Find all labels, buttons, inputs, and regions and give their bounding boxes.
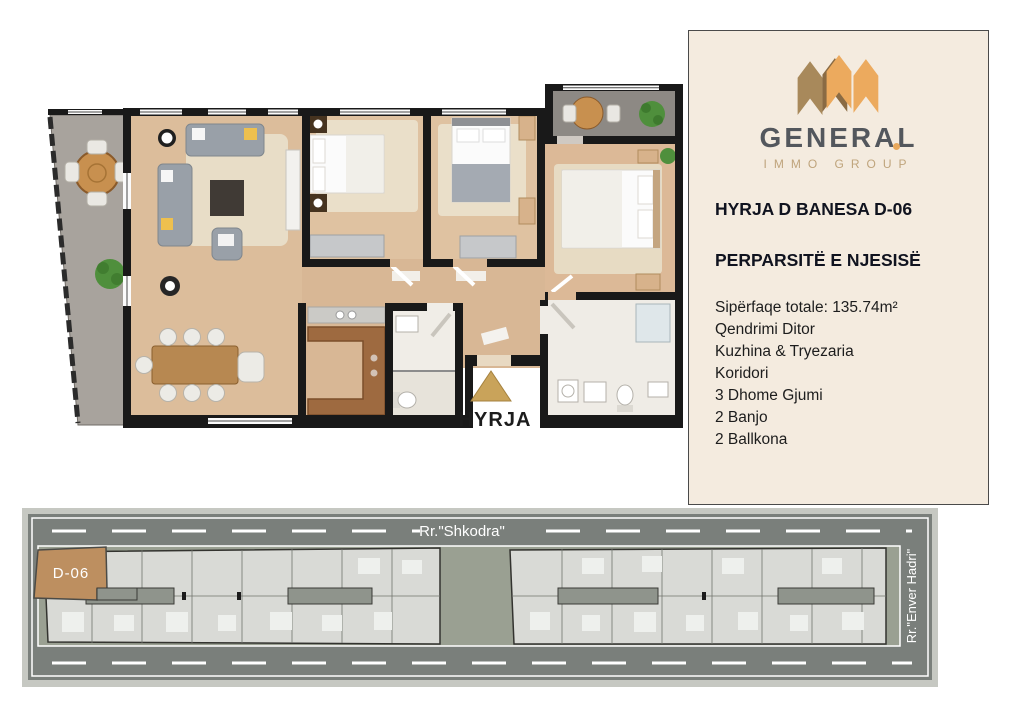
- brochure-page: HYRJA GENERAL IMMO GROUP HYRJA D BANESA …: [0, 0, 1013, 717]
- detail-item: 3 Dhome Gjumi: [715, 385, 988, 407]
- building-wing: [558, 588, 658, 604]
- dining-chair: [160, 385, 177, 402]
- brand-subtitle: IMMO GROUP: [689, 157, 988, 171]
- street-name-right: Rr."Enver Hadri": [904, 548, 919, 643]
- pillow: [161, 218, 173, 230]
- total-area: Sipërfaqe totale: 135.74m²: [715, 297, 988, 319]
- dining-chair: [208, 329, 225, 346]
- pillow: [483, 129, 505, 142]
- unit-label: D-06: [53, 565, 90, 582]
- brand-logo: GENERAL IMMO GROUP: [689, 31, 988, 171]
- terrace-chair: [87, 192, 107, 206]
- dining-chair: [136, 357, 153, 374]
- headboard: [653, 170, 660, 248]
- dresser: [460, 236, 516, 258]
- cabinet: [584, 382, 606, 402]
- wardrobe: [519, 116, 535, 140]
- street-name-top: Rr."Shkodra": [419, 523, 505, 540]
- plant: [660, 148, 676, 164]
- entrance-arrow-icon: [471, 371, 511, 401]
- terrace-chair: [65, 162, 79, 182]
- toilet: [398, 392, 416, 408]
- blanket: [452, 164, 510, 202]
- detail-item: Qendrimi Ditor: [715, 319, 988, 341]
- dining-chair: [208, 385, 225, 402]
- washing-machine: [558, 380, 578, 402]
- terrace: [50, 115, 129, 425]
- shower: [636, 304, 670, 342]
- brand-name: GENERAL: [689, 122, 988, 154]
- bathroom-small: [393, 311, 455, 415]
- apartment-floor-plan: HYRJA: [40, 78, 688, 434]
- pillow: [192, 128, 205, 140]
- toilet: [617, 385, 633, 405]
- site-plan: Rr."Shkodra": [22, 508, 938, 687]
- terrace-table: [75, 151, 119, 195]
- dining-armchair: [238, 352, 264, 382]
- nightstand: [638, 150, 658, 163]
- balcony-chair: [563, 105, 576, 122]
- building-wing: [288, 588, 372, 604]
- dining-chair: [184, 385, 201, 402]
- terrace-chair: [87, 140, 107, 154]
- building-right: [510, 548, 886, 644]
- info-panel: GENERAL IMMO GROUP HYRJA D BANESA D-06 P…: [688, 30, 989, 505]
- pillow: [313, 167, 325, 191]
- dining-chair: [184, 329, 201, 346]
- sink: [648, 382, 668, 397]
- features-heading: PERPARSITË E NJESISË: [689, 250, 988, 271]
- sink: [396, 316, 418, 332]
- balcony-chair: [607, 105, 620, 122]
- pillow: [457, 129, 479, 142]
- unit-details: Sipërfaqe totale: 135.74m² Qendrimi Dito…: [689, 297, 988, 451]
- detail-item: 2 Ballkona: [715, 429, 988, 451]
- brand-dot: [893, 143, 900, 150]
- headboard: [452, 118, 510, 126]
- building-wing: [778, 588, 874, 604]
- bathroom-main: [548, 300, 675, 415]
- wardrobe: [519, 198, 535, 224]
- wardrobe: [310, 235, 384, 257]
- detail-item: Koridori: [715, 363, 988, 385]
- pillow: [313, 139, 325, 163]
- detail-item: 2 Banjo: [715, 407, 988, 429]
- pillow: [638, 210, 653, 238]
- pillow: [161, 170, 173, 182]
- unit-title: HYRJA D BANESA D-06: [689, 199, 988, 220]
- wardrobe: [636, 274, 660, 290]
- dining-chair: [160, 329, 177, 346]
- brand-logo-icon: [789, 55, 889, 115]
- dining-table: [152, 346, 238, 384]
- tv-console: [286, 150, 300, 230]
- bedroom-3: [545, 144, 676, 292]
- pillow: [244, 128, 257, 140]
- entrance-label: HYRJA: [459, 409, 532, 431]
- coffee-table: [210, 180, 244, 216]
- detail-item: Kuzhina & Tryezaria: [715, 341, 988, 363]
- kitchen-appliance-strip: [308, 307, 385, 323]
- pillow: [638, 176, 653, 204]
- balcony-top: [545, 89, 675, 138]
